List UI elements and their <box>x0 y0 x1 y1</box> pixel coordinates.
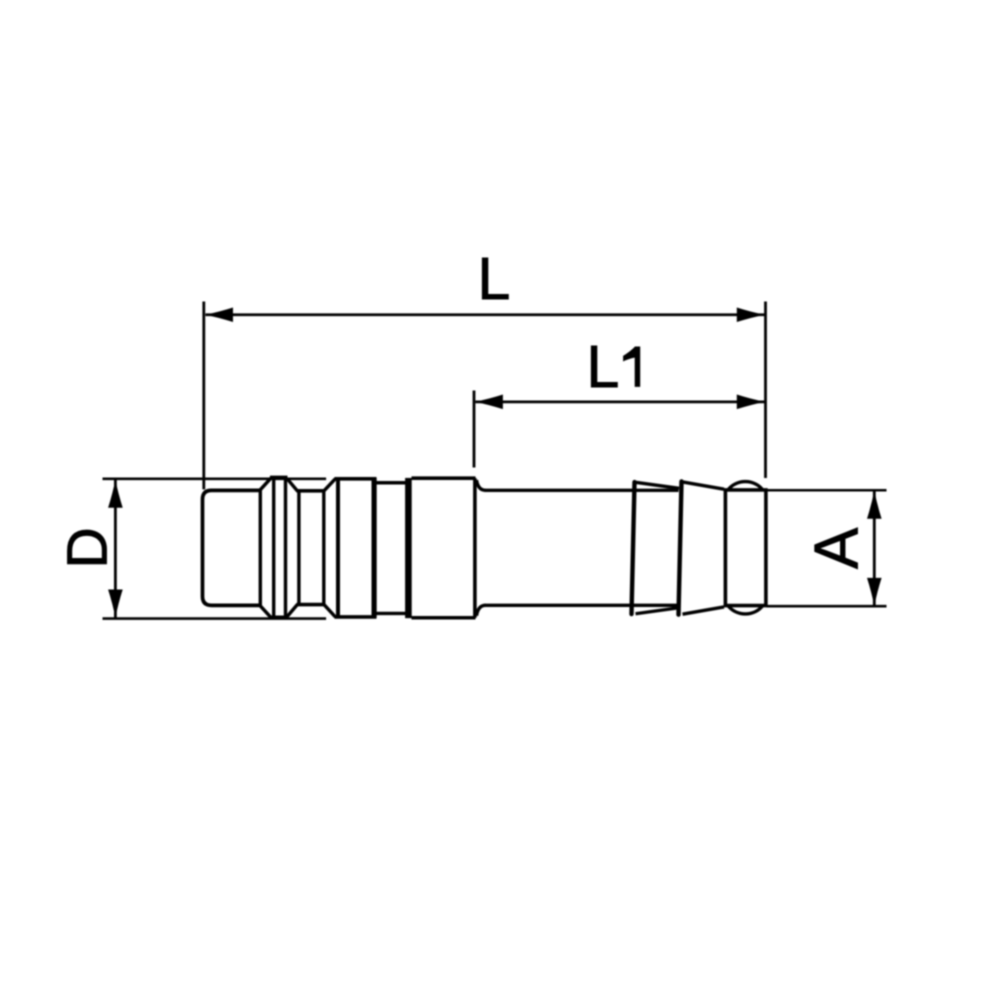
svg-text:L: L <box>478 246 511 312</box>
svg-text:D: D <box>55 527 119 568</box>
svg-text:A: A <box>802 527 871 569</box>
svg-text:L: L <box>587 334 620 400</box>
